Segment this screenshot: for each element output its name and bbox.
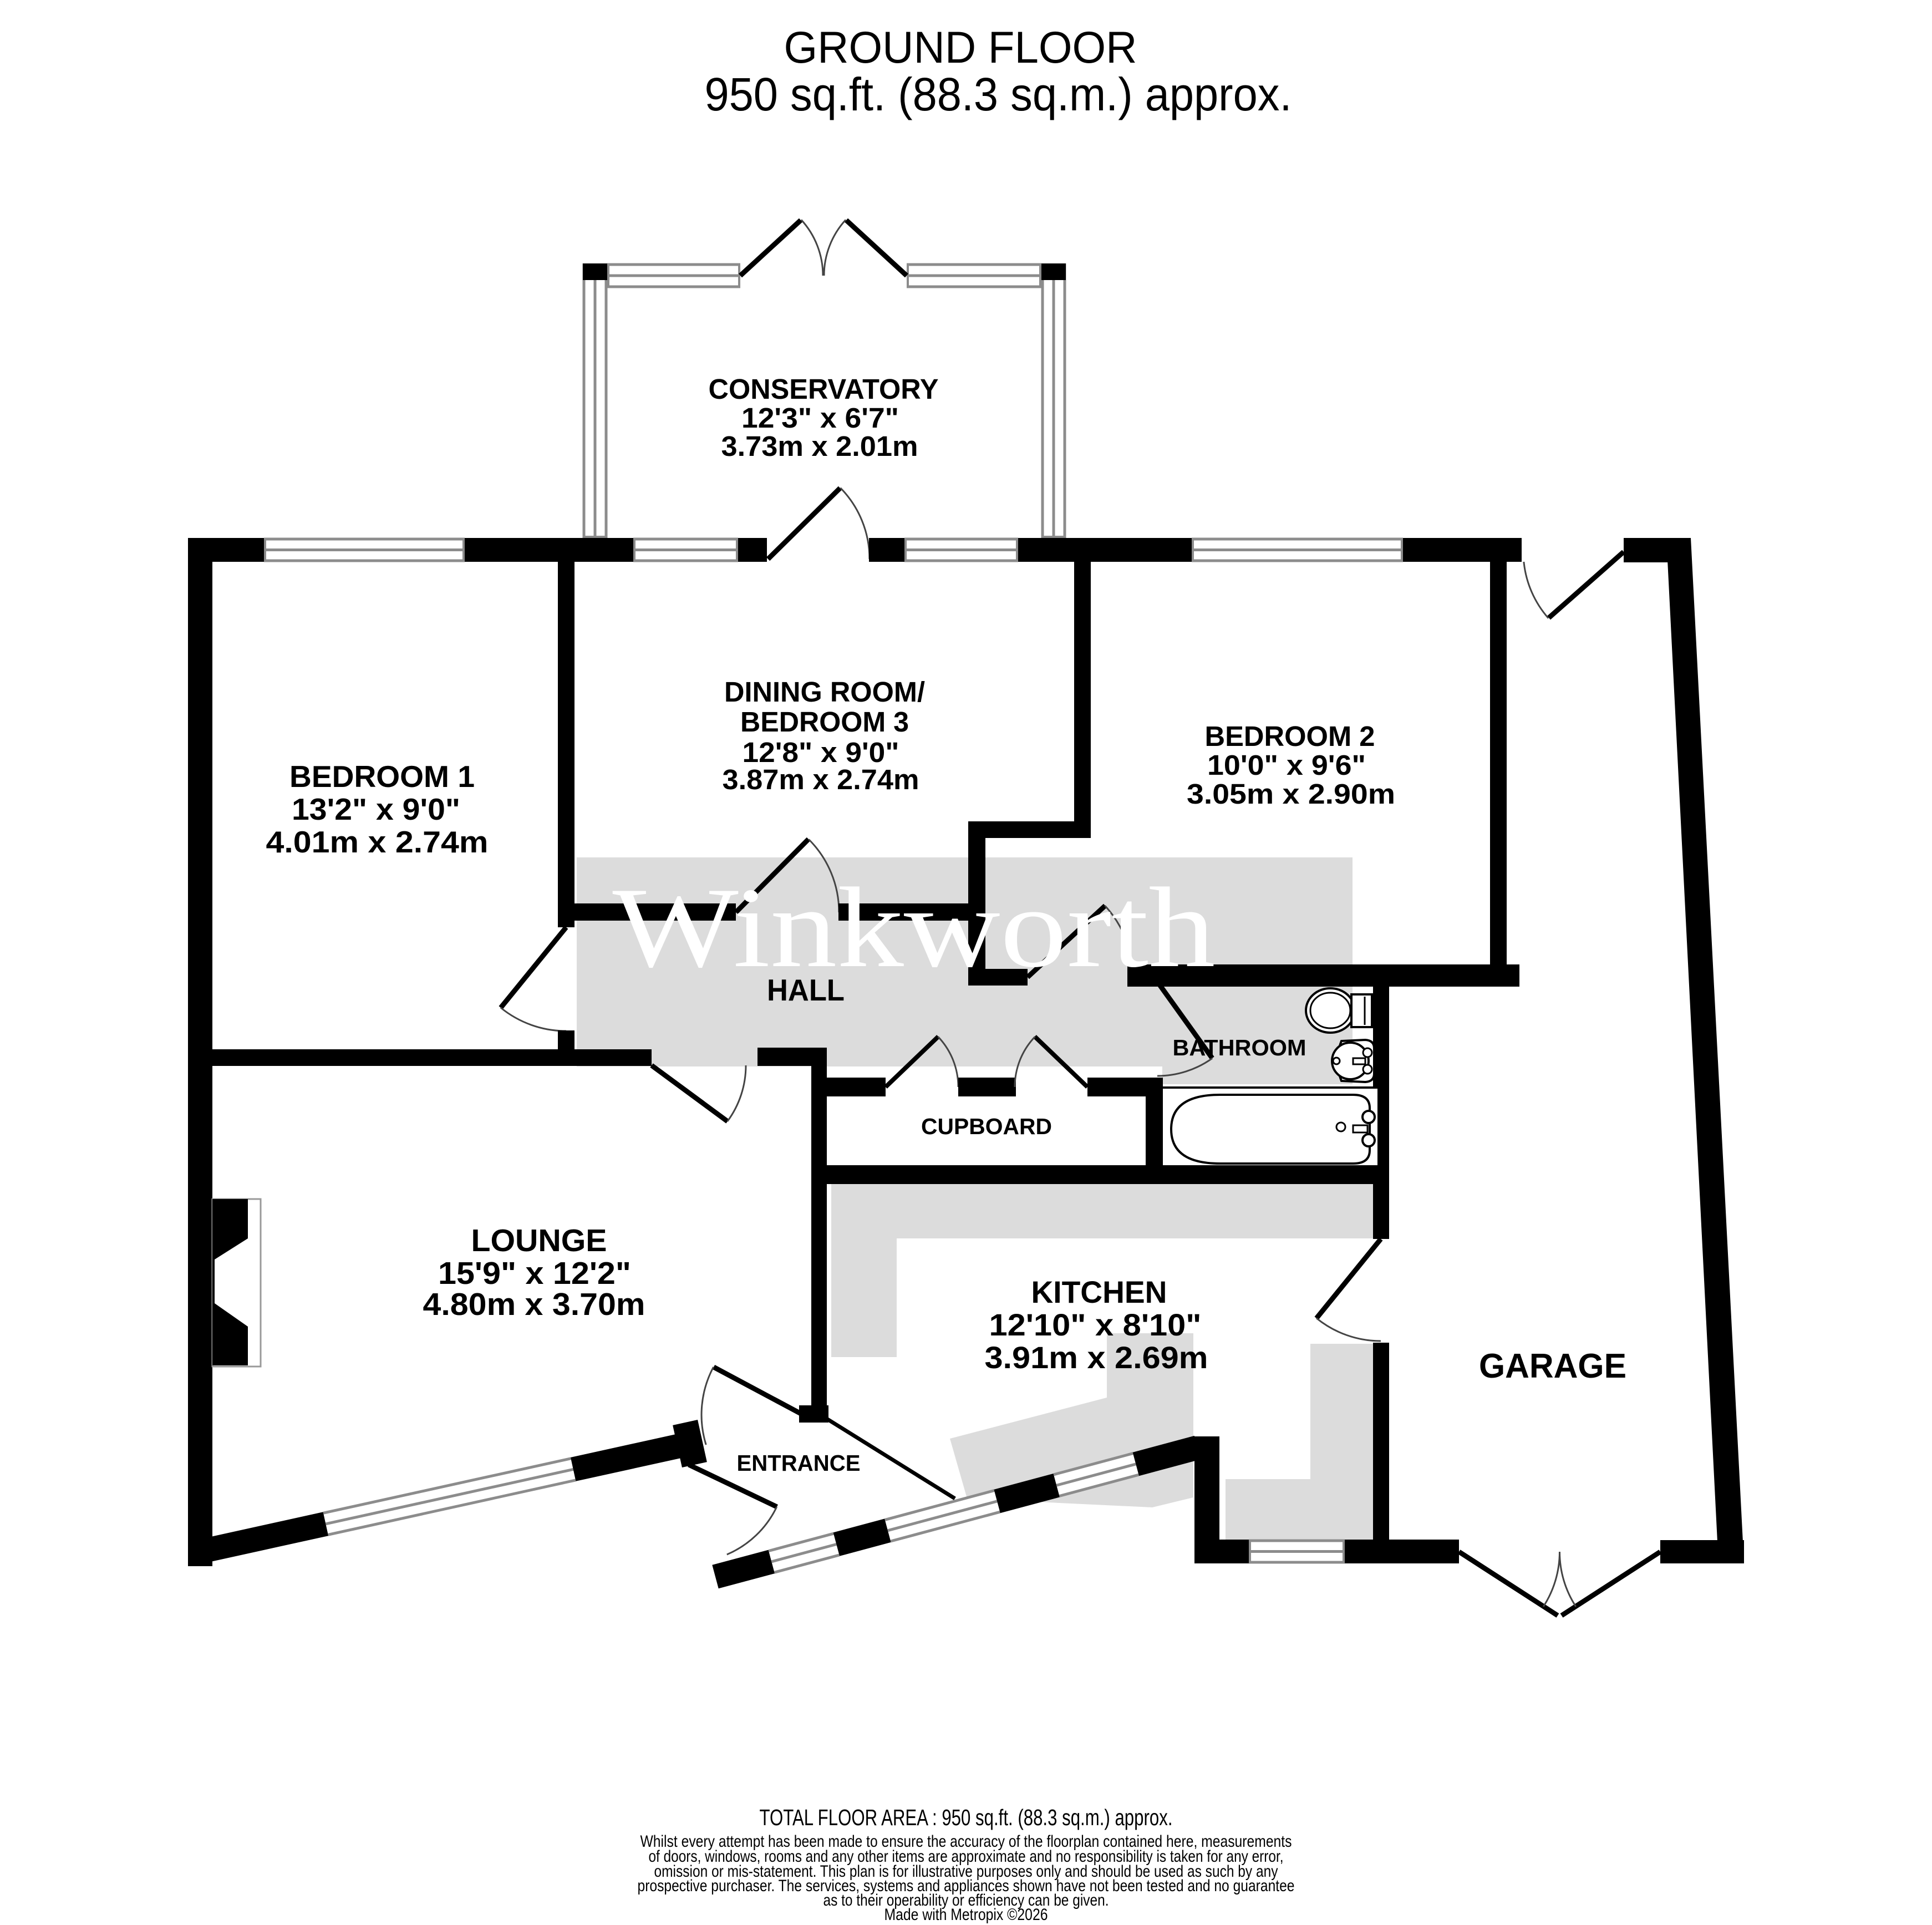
svg-text:CONSERVATORY: CONSERVATORY	[709, 373, 939, 405]
svg-text:3.73m x 2.01m: 3.73m x 2.01m	[721, 430, 918, 462]
svg-text:10'0" x 9'6": 10'0" x 9'6"	[1207, 749, 1366, 781]
svg-text:15'9" x 12'2": 15'9" x 12'2"	[438, 1256, 631, 1291]
svg-text:3.87m x 2.74m: 3.87m x 2.74m	[723, 764, 919, 795]
svg-text:3.91m x 2.69m: 3.91m x 2.69m	[985, 1340, 1208, 1375]
svg-text:12'10" x 8'10": 12'10" x 8'10"	[989, 1307, 1202, 1342]
svg-text:GARAGE: GARAGE	[1479, 1347, 1626, 1385]
svg-text:TOTAL FLOOR AREA : 950 sq.ft.: TOTAL FLOOR AREA : 950 sq.ft. (88.3 sq.m…	[760, 1805, 1173, 1830]
svg-text:12'3" x 6'7": 12'3" x 6'7"	[741, 402, 899, 434]
svg-text:LOUNGE: LOUNGE	[471, 1223, 607, 1258]
svg-text:BEDROOM 2: BEDROOM 2	[1205, 720, 1375, 752]
svg-text:Made with Metropix ©2026: Made with Metropix ©2026	[884, 1906, 1048, 1924]
svg-text:KITCHEN: KITCHEN	[1031, 1274, 1167, 1309]
svg-text:CUPBOARD: CUPBOARD	[921, 1114, 1052, 1139]
svg-text:BEDROOM 1: BEDROOM 1	[289, 759, 475, 794]
svg-text:Winkworth: Winkworth	[613, 864, 1216, 991]
svg-text:BEDROOM 3: BEDROOM 3	[740, 706, 909, 738]
svg-text:DINING ROOM/: DINING ROOM/	[724, 676, 925, 708]
svg-text:13'2" x 9'0": 13'2" x 9'0"	[292, 792, 460, 826]
svg-text:3.05m x 2.90m: 3.05m x 2.90m	[1187, 778, 1395, 810]
svg-text:ENTRANCE: ENTRANCE	[737, 1450, 861, 1476]
svg-text:950 sq.ft. (88.3 sq.m.) approx: 950 sq.ft. (88.3 sq.m.) approx.	[705, 68, 1292, 120]
svg-text:GROUND FLOOR: GROUND FLOOR	[784, 23, 1137, 73]
svg-text:4.01m x 2.74m: 4.01m x 2.74m	[266, 825, 489, 859]
svg-text:4.80m x 3.70m: 4.80m x 3.70m	[423, 1287, 645, 1322]
svg-text:BATHROOM: BATHROOM	[1173, 1035, 1306, 1060]
